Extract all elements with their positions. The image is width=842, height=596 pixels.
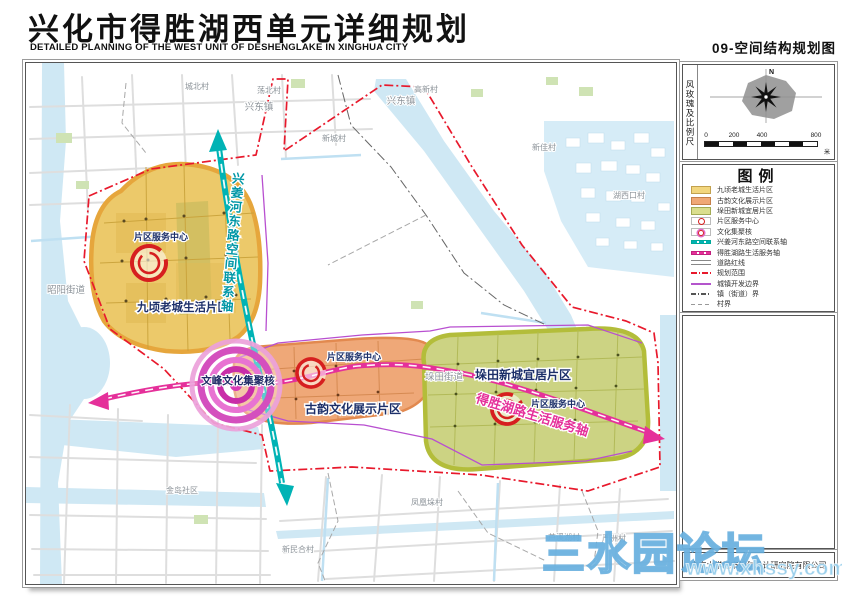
- place-label: 新城村: [322, 133, 346, 143]
- page-subtitle-en: DETAILED PLANNING OF THE WEST UNIT OF DE…: [30, 42, 408, 53]
- service-label-duotian: 片区服务中心: [531, 398, 585, 409]
- scale-tick: 800: [811, 132, 822, 139]
- place-label: 兴东镇: [387, 95, 416, 107]
- scale-tick: 0: [704, 132, 708, 139]
- culture-core-icon: [691, 228, 711, 236]
- place-label: 湖西口村: [613, 190, 645, 200]
- zone-green-swatch: [691, 207, 711, 215]
- legend-label: 垛田新城宜居片区: [717, 206, 773, 216]
- windrose-svg: N: [698, 65, 834, 127]
- legend-item-11: 村界: [689, 299, 828, 309]
- legend-label: 村界: [717, 299, 731, 309]
- road-redline-swatch: [691, 260, 711, 265]
- windrose-panel-label: 风玫瑰及比例尺: [683, 65, 698, 159]
- legend-label: 九顷老城生活片区: [717, 185, 773, 195]
- legend-label: 片区服务中心: [717, 216, 759, 226]
- service-label-guyun: 片区服务中心: [327, 351, 381, 362]
- planning-map: 城北村 荡北村 兴东镇 兴东镇 高新村 新城村 新佳村 湖西口村 昭阳街道 垛田…: [25, 62, 677, 585]
- legend-panel: 图例 九顷老城生活片区 古韵文化展示片区 垛田新城宜居片区 片区服务中心 文化集…: [682, 164, 835, 312]
- dev-boundary-swatch: [691, 283, 711, 285]
- legend-item-1: 古韵文化展示片区: [689, 195, 828, 205]
- empty-panel: [682, 315, 835, 549]
- place-label: 垛田街道: [425, 371, 464, 383]
- publisher-name: 南京大学城市规划设计研究院有限公司: [691, 560, 827, 571]
- village-boundary-swatch: [691, 304, 711, 306]
- scale-bar: 0 200 400 800 米: [704, 132, 828, 156]
- place-label: 荡北村: [257, 85, 281, 95]
- legend-item-3: 片区服务中心: [689, 216, 828, 226]
- place-label: 金岛社区: [166, 485, 198, 495]
- legend-label: 兴姜河东路空间联系轴: [717, 237, 787, 247]
- zone-label-duotian: 垛田新城宜居片区: [475, 367, 571, 382]
- publisher-panel: 南京大学城市规划设计研究院有限公司: [682, 552, 835, 578]
- legend-label: 镇（街道）界: [717, 289, 759, 299]
- place-label: 严洲村: [602, 533, 626, 543]
- legend-item-2: 垛田新城宜居片区: [689, 206, 828, 216]
- legend-label: 城镇开发边界: [717, 279, 759, 289]
- north-label: N: [769, 69, 774, 76]
- legend-title: 图例: [689, 167, 828, 185]
- legend-item-10: 镇（街道）界: [689, 289, 828, 299]
- legend-label: 得胜湖路生活服务轴: [717, 248, 780, 258]
- place-label: 芦溪湖村: [548, 532, 580, 542]
- legend-item-4: 文化集聚核: [689, 227, 828, 237]
- town-boundary-swatch: [691, 293, 711, 295]
- legend-label: 道路红线: [717, 258, 745, 268]
- scale-tick: 200: [729, 132, 740, 139]
- scale-unit: 米: [824, 147, 830, 156]
- windrose-area: N 0 200 400 800 米: [698, 65, 834, 159]
- windrose-panel: 风玫瑰及比例尺 N 0 200 400 800 米: [682, 64, 835, 160]
- zone-label-guyun: 古韵文化展示片区: [305, 401, 401, 416]
- culture-core-label: 文峰文化集聚核: [200, 374, 275, 387]
- scale-ticks: 0 200 400 800: [704, 132, 828, 141]
- zone-yellow-swatch: [691, 186, 711, 194]
- scale-tick: 400: [757, 132, 768, 139]
- teal-axis-swatch: [691, 240, 711, 244]
- map-canvas: 城北村 荡北村 兴东镇 兴东镇 高新村 新城村 新佳村 湖西口村 昭阳街道 垛田…: [26, 63, 676, 584]
- legend-label: 文化集聚核: [717, 227, 752, 237]
- magenta-axis-swatch: [691, 251, 711, 255]
- legend-item-6: 得胜湖路生活服务轴: [689, 247, 828, 257]
- place-label: 新民合村: [282, 544, 314, 554]
- scale-bar-segments: [704, 141, 818, 147]
- legend-item-8: 规划范围: [689, 268, 828, 278]
- zone-orange-swatch: [691, 197, 711, 205]
- planning-scope-swatch: [691, 272, 711, 274]
- place-label: 城北村: [185, 81, 209, 91]
- place-label: 高新村: [414, 84, 438, 94]
- legend-item-0: 九顷老城生活片区: [689, 185, 828, 195]
- sheet-number-label: 09-空间结构规划图: [560, 37, 836, 57]
- place-label: 昭阳街道: [47, 284, 86, 296]
- place-label: 兴东镇: [245, 101, 274, 113]
- zone-label-jiuqing: 九顷老城生活片区: [136, 300, 229, 314]
- service-label-jiuqing: 片区服务中心: [134, 231, 188, 242]
- legend-item-9: 城镇开发边界: [689, 279, 828, 289]
- place-label: 新佳村: [532, 142, 556, 152]
- legend-item-7: 道路红线: [689, 258, 828, 268]
- service-center-icon: [691, 217, 711, 225]
- legend-label: 古韵文化展示片区: [717, 196, 773, 206]
- place-label: 凤凰垛村: [411, 497, 443, 507]
- legend-label: 规划范围: [717, 268, 745, 278]
- legend-item-5: 兴姜河东路空间联系轴: [689, 237, 828, 247]
